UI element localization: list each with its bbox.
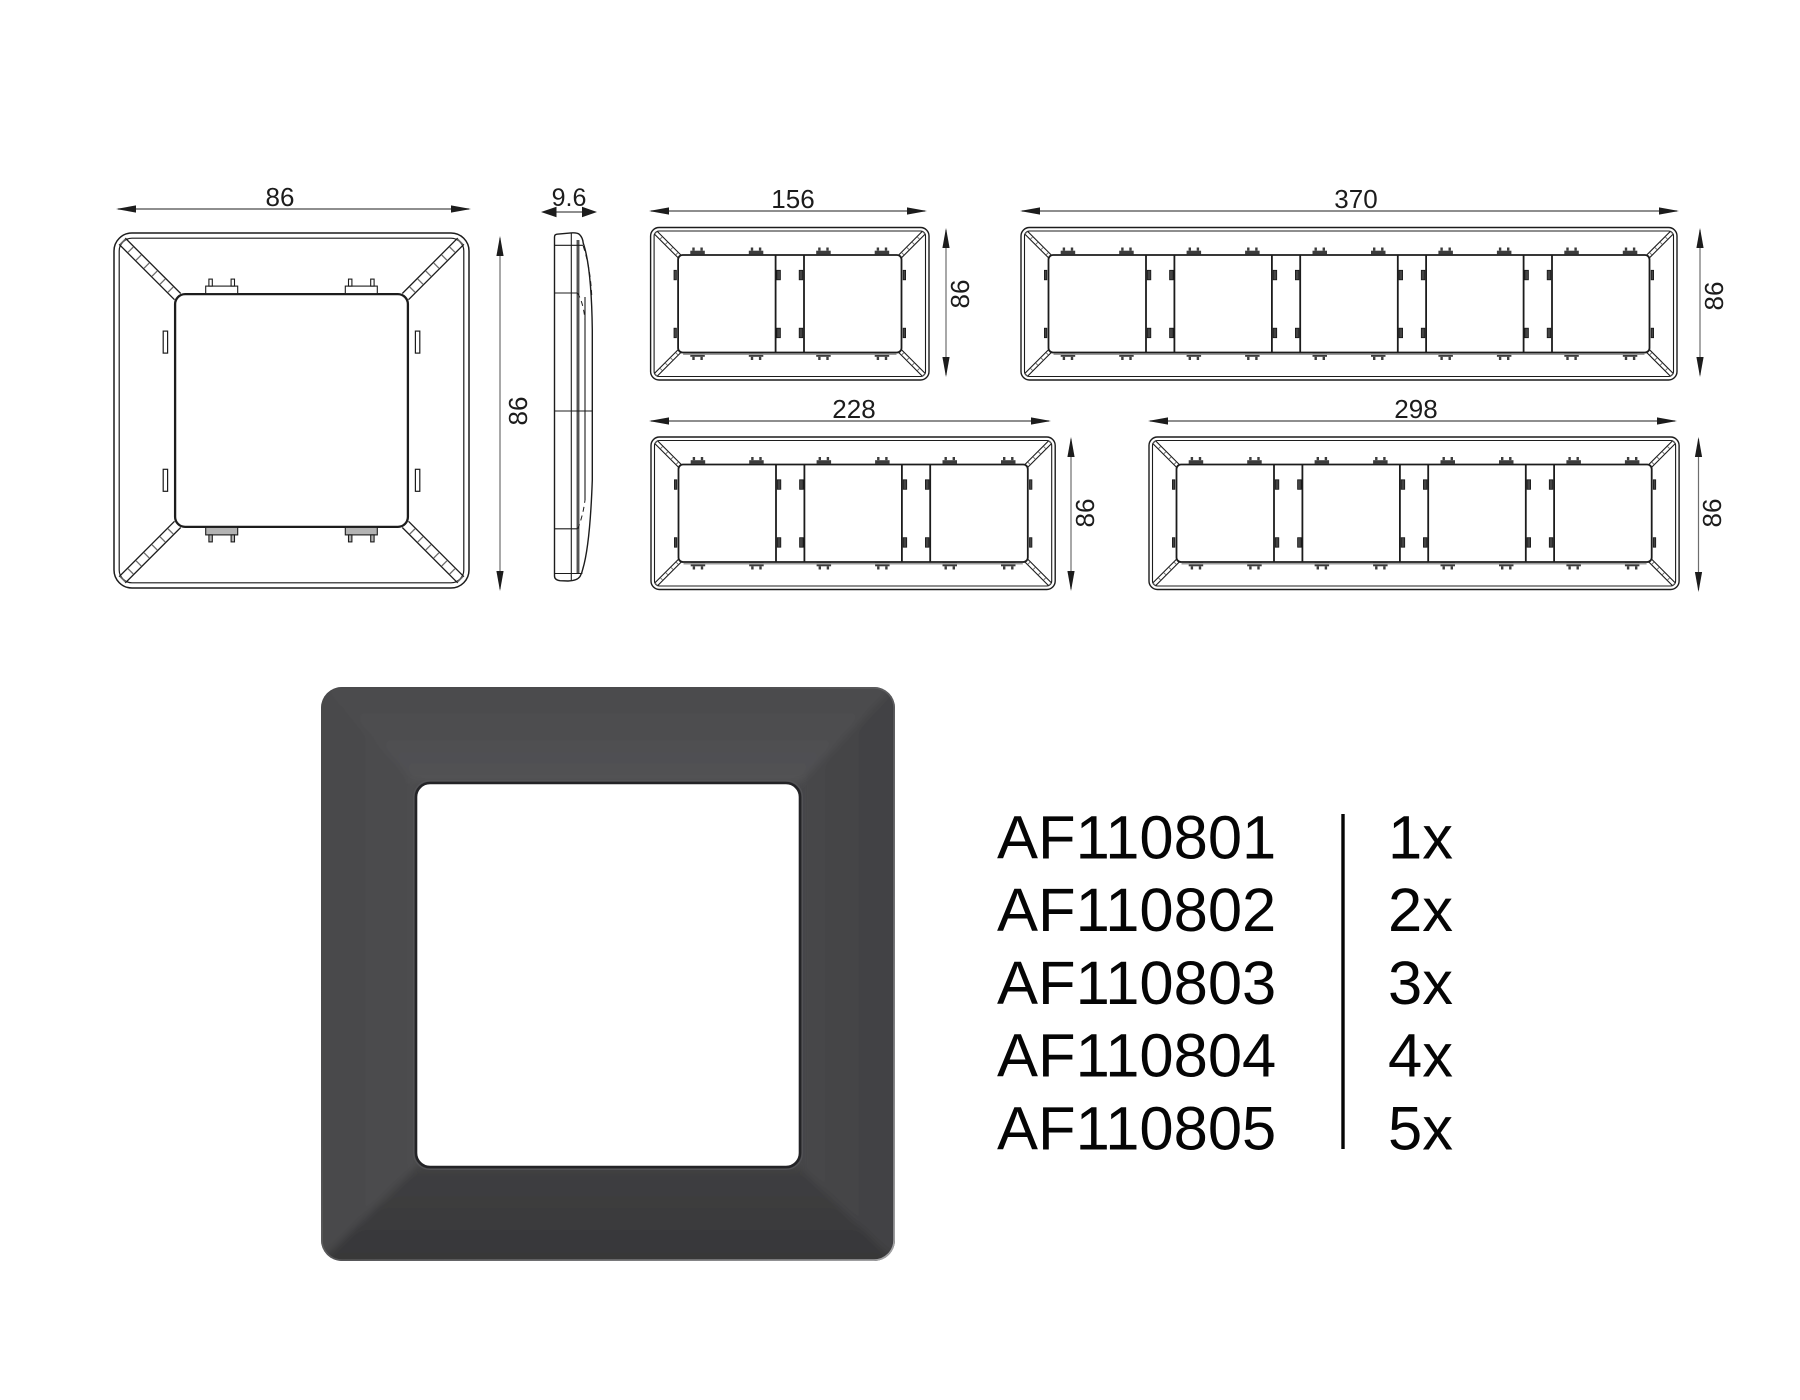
- svg-text:86: 86: [503, 397, 533, 426]
- svg-text:298: 298: [1394, 394, 1437, 424]
- svg-text:228: 228: [832, 394, 875, 424]
- svg-text:86: 86: [1699, 282, 1729, 311]
- svg-text:3x: 3x: [1388, 949, 1453, 1018]
- svg-text:4x: 4x: [1388, 1022, 1453, 1091]
- svg-text:86: 86: [945, 280, 975, 309]
- svg-text:370: 370: [1334, 184, 1377, 214]
- svg-text:156: 156: [771, 184, 814, 214]
- svg-text:86: 86: [1697, 499, 1727, 528]
- svg-text:AF110804: AF110804: [997, 1022, 1276, 1091]
- svg-text:9.6: 9.6: [552, 184, 587, 212]
- svg-text:86: 86: [1070, 499, 1100, 528]
- svg-text:AF110805: AF110805: [997, 1094, 1276, 1163]
- svg-text:86: 86: [266, 182, 295, 212]
- svg-text:2x: 2x: [1388, 876, 1453, 945]
- svg-text:AF110802: AF110802: [997, 876, 1276, 945]
- svg-text:AF110801: AF110801: [997, 804, 1276, 873]
- svg-text:5x: 5x: [1388, 1094, 1453, 1163]
- svg-text:1x: 1x: [1388, 804, 1453, 873]
- svg-text:AF110803: AF110803: [997, 949, 1276, 1018]
